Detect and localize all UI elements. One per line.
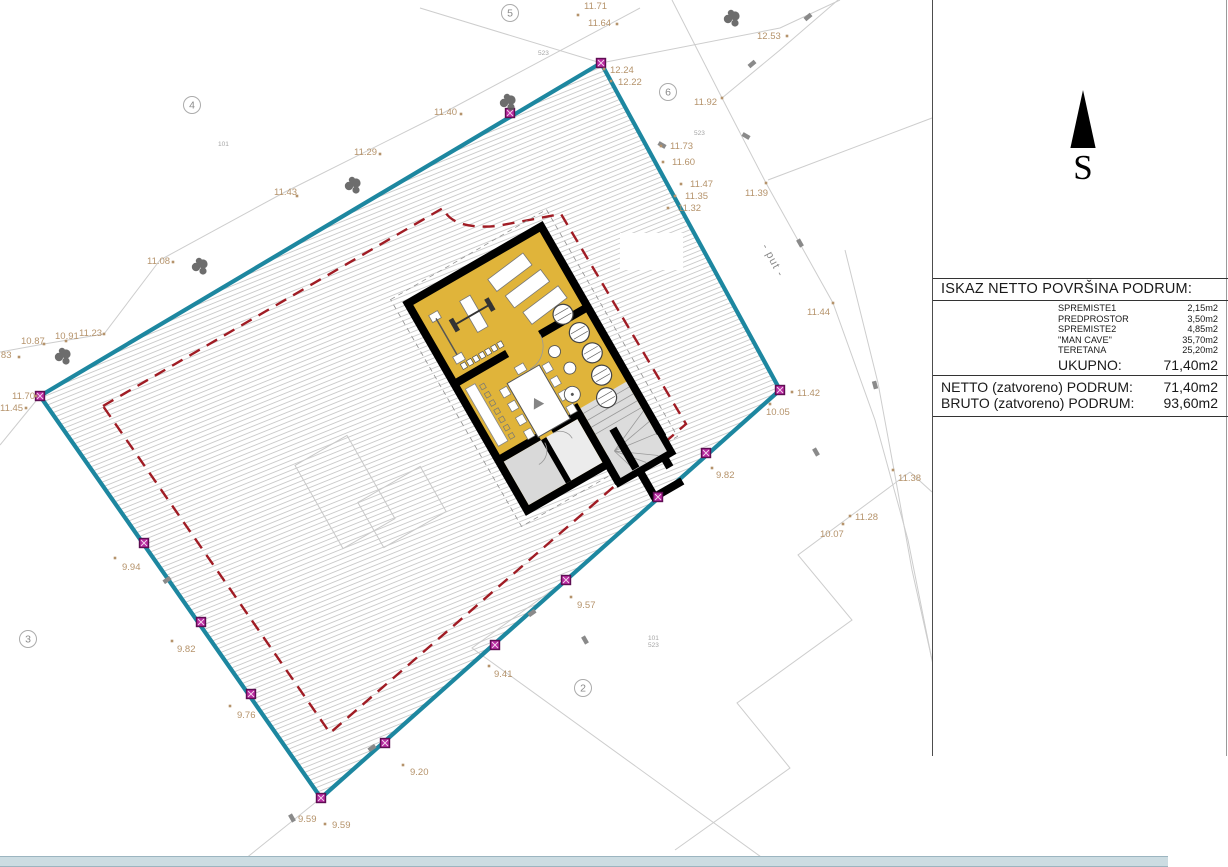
north-indicator: S <box>1060 90 1106 186</box>
elevation-point <box>25 407 28 410</box>
elevation-point <box>786 35 789 38</box>
corner-marker <box>140 539 149 548</box>
elevation-point <box>674 195 677 198</box>
elevation-point <box>711 467 714 470</box>
elevation-label: 11.47 <box>690 179 713 190</box>
area-table-title: ISKAZ NETTO POVRŠINA PODRUM: <box>933 279 1228 301</box>
summary-row: NETTO (zatvoreno) PODRUM:71,40m2 <box>941 379 1218 395</box>
elevation-label: 0.83 <box>0 350 12 361</box>
parcel-number: 523 <box>694 130 705 137</box>
elevation-point <box>43 343 46 346</box>
area-row: TERETANA25,20m2 <box>933 345 1228 356</box>
bottom-band <box>0 856 1168 867</box>
elevation-label: 9.82 <box>177 644 196 655</box>
blank-patch <box>620 233 683 270</box>
elevation-label: 11.28 <box>855 512 878 523</box>
elevation-point <box>18 356 21 359</box>
elevation-label: 11.43 <box>274 187 297 198</box>
elevation-label: 11.92 <box>694 97 717 108</box>
corner-marker <box>491 641 500 650</box>
survey-stake <box>288 813 296 822</box>
elevation-point <box>892 469 895 472</box>
parcel-number: 101 <box>648 635 659 642</box>
area-table: ISKAZ NETTO POVRŠINA PODRUM: SPREMISTE12… <box>933 278 1228 417</box>
road-label: - put - <box>759 242 786 279</box>
elevation-point <box>769 403 772 406</box>
area-row: SPREMISTE12,15m2 <box>933 303 1228 314</box>
elevation-label: 11.60 <box>672 157 695 168</box>
corner-marker <box>776 386 785 395</box>
parcel-id-number: 6 <box>665 87 671 99</box>
elevation-label: 11.08 <box>147 256 170 267</box>
survey-stake <box>748 60 757 69</box>
elevation-label: 11.23 <box>79 328 102 339</box>
corner-marker <box>562 576 571 585</box>
parcel-number: 523 <box>538 50 549 57</box>
elevation-label: 9.20 <box>410 767 429 778</box>
tree-icon <box>55 348 71 365</box>
elevation-label: 11.45 <box>0 403 23 414</box>
elevation-point <box>488 665 491 668</box>
elevation-label: 11.40 <box>434 107 457 118</box>
elevation-label: 9.76 <box>237 710 256 721</box>
area-total-row: UKUPNO:71,40m2 <box>933 357 1228 374</box>
elevation-label: 10.05 <box>766 407 790 418</box>
elevation-point <box>680 183 683 186</box>
elevation-point <box>296 195 299 198</box>
elevation-label: 9.94 <box>122 562 141 573</box>
elevation-label: 11.32 <box>678 203 701 214</box>
parcel-number: 101 <box>218 141 229 148</box>
parcel-id-number: 3 <box>25 634 31 646</box>
elevation-point <box>610 80 613 83</box>
area-row: "MAN CAVE"35,70m2 <box>933 335 1228 346</box>
elevation-point <box>603 68 606 71</box>
elevation-point <box>402 764 405 767</box>
survey-stake <box>581 635 589 644</box>
elevation-label: 9.57 <box>577 600 596 611</box>
elevation-point <box>379 153 382 156</box>
parcel-id-number: 5 <box>507 8 513 20</box>
area-row: PREDPROSTOR3,50m2 <box>933 314 1228 325</box>
elevation-label: 11.44 <box>807 307 830 318</box>
elevation-point <box>171 640 174 643</box>
parcel-number: 523 <box>648 642 659 649</box>
parcel-id-number: 4 <box>189 100 195 112</box>
elevation-point <box>172 261 175 264</box>
parcel-id-number: 2 <box>580 683 586 695</box>
survey-stake <box>812 447 820 456</box>
area-table-rows: SPREMISTE12,15m2PREDPROSTOR3,50m2SPREMIS… <box>933 301 1228 376</box>
tree-icon <box>192 258 208 275</box>
area-row: SPREMISTE24,85m2 <box>933 324 1228 335</box>
corner-marker <box>197 618 206 627</box>
elevation-point <box>35 395 38 398</box>
elevation-point <box>229 705 232 708</box>
tree-icon <box>724 10 740 27</box>
elevation-point <box>765 182 768 185</box>
north-arrow-icon <box>1068 90 1098 148</box>
elevation-label: 9.59 <box>332 820 351 831</box>
elevation-label: 11.73 <box>670 141 693 152</box>
elevation-label: 11.35 <box>685 191 708 202</box>
elevation-point <box>791 391 794 394</box>
elevation-label: 11.71 <box>584 1 607 12</box>
elevation-point <box>721 97 724 100</box>
corner-marker <box>247 690 256 699</box>
elevation-label: 9.82 <box>716 470 735 481</box>
area-table-summary: NETTO (zatvoreno) PODRUM:71,40m2BRUTO (z… <box>933 376 1228 416</box>
elevation-label: 11.29 <box>354 147 377 158</box>
elevation-label: 12.22 <box>618 77 642 88</box>
tree-icon <box>500 94 516 111</box>
elevation-label: 9.41 <box>494 669 513 680</box>
corner-marker <box>317 794 326 803</box>
corner-marker <box>702 449 711 458</box>
elevation-label: 12.24 <box>610 65 634 76</box>
elevation-label: 11.70 <box>12 391 35 402</box>
elevation-point <box>65 340 68 343</box>
elevation-point <box>324 823 327 826</box>
elevation-label: 9.59 <box>298 814 317 825</box>
parcel-boundary <box>40 63 780 798</box>
elevation-point <box>849 515 852 518</box>
elevation-label: 11.39 <box>745 188 768 199</box>
site-plan-drawing: 11.7111.6412.2412.2212.5311.9211.4011.29… <box>0 0 1228 867</box>
elevation-point <box>842 523 845 526</box>
elevation-point <box>570 596 573 599</box>
corner-marker <box>381 739 390 748</box>
elevation-label: 10.07 <box>820 529 844 540</box>
elevation-point <box>616 23 619 26</box>
elevation-label: 11.38 <box>898 473 921 484</box>
elevation-point <box>832 302 835 305</box>
tree-icon <box>345 177 361 194</box>
elevation-point <box>667 207 670 210</box>
elevation-point <box>114 557 117 560</box>
elevation-point <box>662 161 665 164</box>
site-plan-screenshot: 11.7111.6412.2412.2212.5311.9211.4011.29… <box>0 0 1228 867</box>
elevation-point <box>577 14 580 17</box>
corner-marker <box>654 493 663 502</box>
elevation-point <box>460 113 463 116</box>
elevation-label: 12.53 <box>757 31 781 42</box>
elevation-label: 11.42 <box>797 388 820 399</box>
elevation-label: 11.64 <box>588 18 611 29</box>
elevation-point <box>660 145 663 148</box>
road-right-edge <box>845 250 932 660</box>
north-label: S <box>1060 150 1106 186</box>
corner-marker <box>597 59 606 68</box>
elevation-point <box>103 333 106 336</box>
summary-row: BRUTO (zatvoreno) PODRUM:93,60m2 <box>941 395 1218 411</box>
elevation-label: 10.87 <box>21 336 45 347</box>
